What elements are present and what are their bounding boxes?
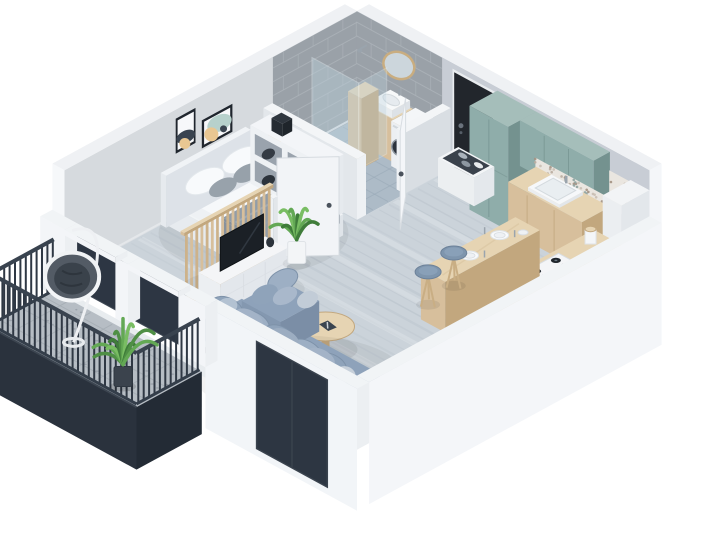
door-handle	[327, 203, 332, 208]
door-handle	[458, 123, 463, 128]
floorplan-canvas	[0, 0, 714, 555]
door-handle	[399, 171, 404, 176]
speaker	[266, 237, 274, 247]
bowl	[518, 230, 528, 235]
chair-cushion	[54, 263, 90, 295]
floorplan-render	[0, 0, 714, 555]
plant-pot	[114, 367, 132, 387]
plant-pot	[288, 242, 306, 264]
interior-door	[277, 157, 339, 257]
storage-jar	[585, 226, 596, 244]
